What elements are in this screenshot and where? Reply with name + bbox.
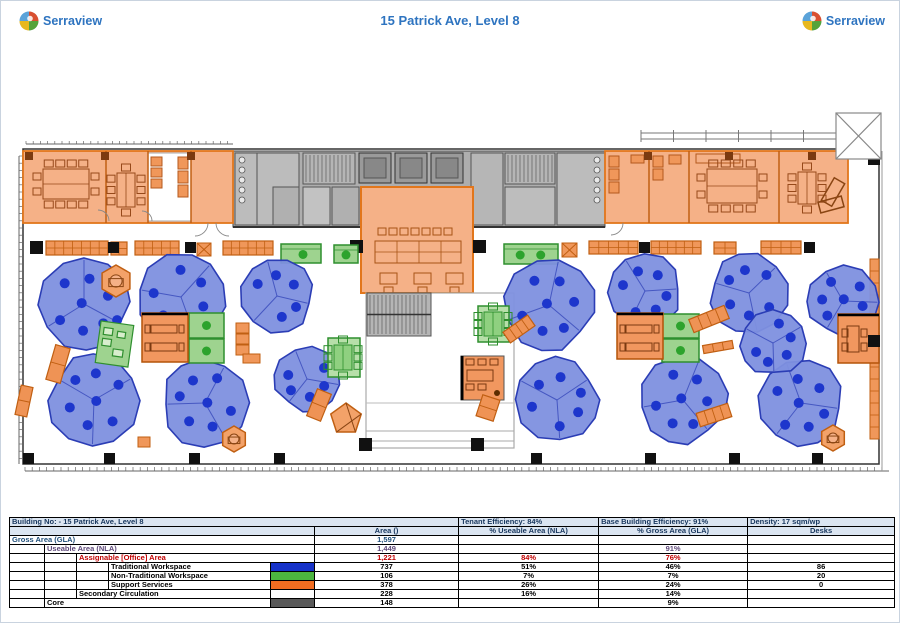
gla-value-cell: 24% — [599, 581, 748, 590]
column-header-cell: Area () — [315, 527, 459, 536]
gla-value-cell: 14% — [599, 590, 748, 599]
gla-value-cell: 46% — [599, 563, 748, 572]
density-cell: Density: 17 sqm/wp — [748, 518, 895, 527]
table-row: Assignable [Office] Area1,22184%76% — [10, 554, 895, 563]
nla-value-cell — [459, 599, 599, 608]
desks-value-cell: 86 — [748, 563, 895, 572]
table-row: Non-Traditional Workspace1067%7%20 — [10, 572, 895, 581]
gla-value-cell: 7% — [599, 572, 748, 581]
table-row: Traditional Workspace73751%46%86 — [10, 563, 895, 572]
table-subheader-row: Area ()% Useable Area (NLA)% Gross Area … — [10, 527, 895, 536]
legend-swatch — [271, 581, 315, 590]
indent-cell — [77, 563, 109, 572]
nla-value-cell — [459, 536, 599, 545]
column-header-cell: Desks — [748, 527, 895, 536]
gla-value-cell: 76% — [599, 554, 748, 563]
nla-value-cell: 51% — [459, 563, 599, 572]
floor-plan — [1, 1, 900, 517]
desks-value-cell — [748, 554, 895, 563]
indent-cell — [45, 563, 77, 572]
building-header-cell: Building No: - 15 Patrick Ave, Level 8 — [10, 518, 459, 527]
area-summary-table: Building No: - 15 Patrick Ave, Level 8Te… — [9, 517, 895, 608]
area-value-cell: 1,597 — [315, 536, 459, 545]
area-value-cell: 148 — [315, 599, 459, 608]
area-value-cell: 1,449 — [315, 545, 459, 554]
area-value-cell: 106 — [315, 572, 459, 581]
row-label-cell: Core — [45, 599, 271, 608]
table-header-row: Building No: - 15 Patrick Ave, Level 8Te… — [10, 518, 895, 527]
desks-value-cell — [748, 536, 895, 545]
column-header-cell: % Useable Area (NLA) — [459, 527, 599, 536]
legend-swatch — [271, 572, 315, 581]
nla-value-cell: 26% — [459, 581, 599, 590]
indent-cell — [10, 599, 45, 608]
indent-cell — [10, 581, 45, 590]
legend-swatch — [271, 599, 315, 608]
table-cell — [10, 527, 315, 536]
nla-value-cell: 84% — [459, 554, 599, 563]
legend-swatch — [271, 563, 315, 572]
desks-value-cell — [748, 590, 895, 599]
indent-cell — [10, 563, 45, 572]
area-value-cell: 378 — [315, 581, 459, 590]
indent-cell — [45, 581, 77, 590]
desks-value-cell — [748, 599, 895, 608]
nla-value-cell — [459, 545, 599, 554]
indent-cell — [45, 554, 77, 563]
gla-value-cell: 9% — [599, 599, 748, 608]
table-row: Gross Area (GLA)1,597 — [10, 536, 895, 545]
row-label-cell: Gross Area (GLA) — [10, 536, 315, 545]
indent-cell — [77, 572, 109, 581]
row-label-cell: Useable Area (NLA) — [45, 545, 315, 554]
gla-value-cell: 91% — [599, 545, 748, 554]
legend-swatch — [271, 590, 315, 599]
indent-cell — [77, 581, 109, 590]
desks-value-cell: 0 — [748, 581, 895, 590]
desks-value-cell: 20 — [748, 572, 895, 581]
gla-value-cell — [599, 536, 748, 545]
row-label-cell: Assignable [Office] Area — [77, 554, 315, 563]
indent-cell — [45, 590, 77, 599]
area-value-cell: 1,221 — [315, 554, 459, 563]
area-value-cell: 737 — [315, 563, 459, 572]
row-label-cell: Traditional Workspace — [109, 563, 271, 572]
row-label-cell: Secondary Circulation — [77, 590, 271, 599]
row-label-cell: Support Services — [109, 581, 271, 590]
table-row: Secondary Circulation22816%14% — [10, 590, 895, 599]
nla-value-cell: 16% — [459, 590, 599, 599]
area-value-cell: 228 — [315, 590, 459, 599]
table-row: Support Services37826%24%0 — [10, 581, 895, 590]
indent-cell — [10, 572, 45, 581]
desks-value-cell — [748, 545, 895, 554]
column-header-cell: % Gross Area (GLA) — [599, 527, 748, 536]
report-page: Serraview 15 Patrick Ave, Level 8 Serrav… — [0, 0, 900, 623]
indent-cell — [10, 554, 45, 563]
indent-cell — [45, 572, 77, 581]
indent-cell — [10, 545, 45, 554]
table-row: Useable Area (NLA)1,44991% — [10, 545, 895, 554]
table-row: Core1489% — [10, 599, 895, 608]
indent-cell — [10, 590, 45, 599]
nla-value-cell: 7% — [459, 572, 599, 581]
tenant-efficiency-cell: Tenant Efficiency: 84% — [459, 518, 599, 527]
base-efficiency-cell: Base Building Efficiency: 91% — [599, 518, 748, 527]
row-label-cell: Non-Traditional Workspace — [109, 572, 271, 581]
